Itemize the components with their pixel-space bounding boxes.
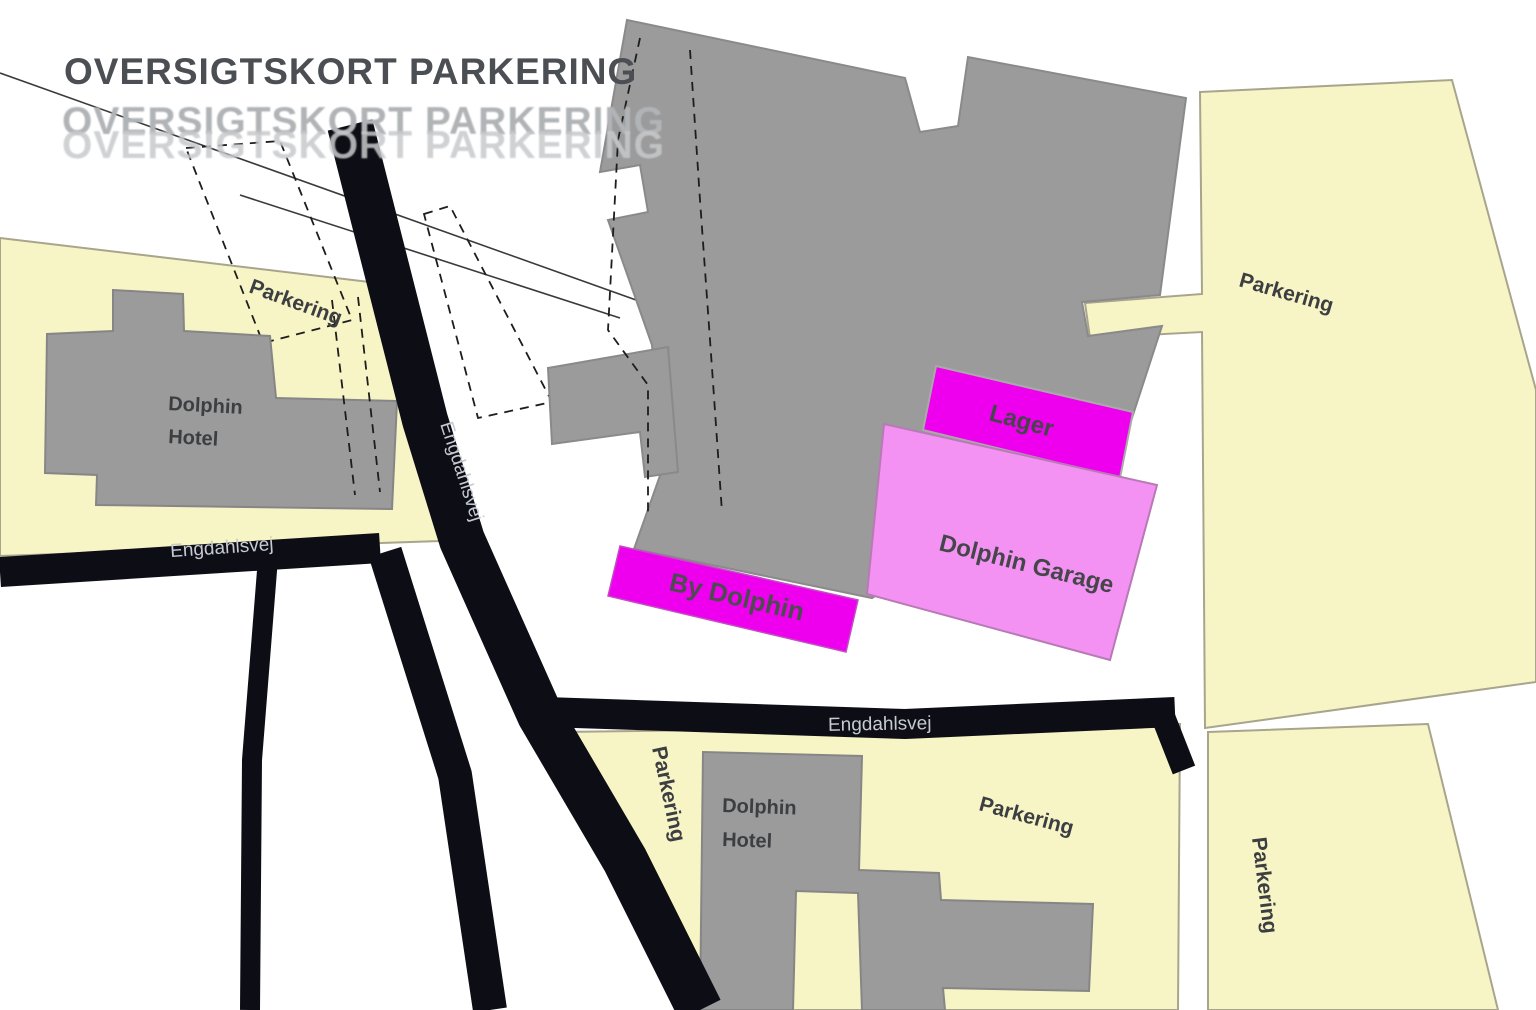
map-title-ghost-2: OVERSIGTSKORT PARKERING	[62, 124, 665, 167]
label-dolphin-south-line2: Hotel	[722, 829, 773, 853]
road-minor-south-narrow	[250, 558, 268, 1010]
building-main-complex-west-wing	[548, 347, 678, 477]
callout-dashed-area-mid	[424, 206, 552, 418]
label-dolphin-west-line2: Hotel	[168, 426, 219, 451]
overview-parking-map: Engdahlsvej Engdahlsvej Engdahlsvej Park…	[0, 0, 1536, 1010]
label-dolphin-south-line1: Dolphin	[722, 795, 797, 820]
street-label-engdahlsvej-south: Engdahlsvej	[828, 713, 932, 736]
map-title: OVERSIGTSKORT PARKERING	[64, 51, 637, 92]
label-dolphin-west-line1: Dolphin	[168, 393, 243, 419]
map-canvas: Engdahlsvej Engdahlsvej Engdahlsvej Park…	[0, 0, 1536, 1010]
